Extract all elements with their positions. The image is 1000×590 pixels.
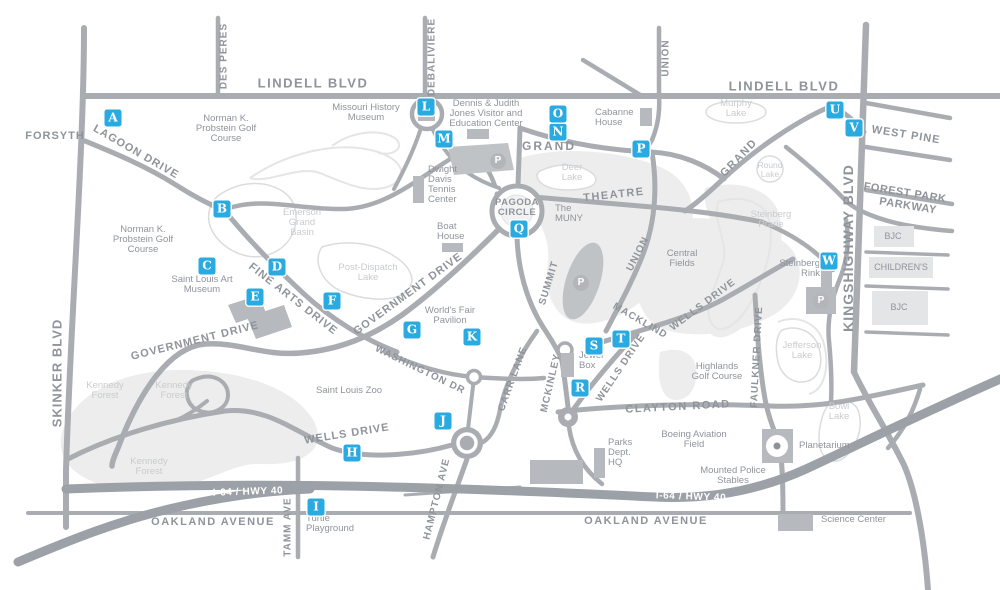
map-marker-e[interactable]: E <box>247 289 264 306</box>
map-marker-p[interactable]: P <box>633 141 650 158</box>
map-marker-i[interactable]: I <box>308 499 325 516</box>
map-marker-m[interactable]: M <box>436 131 453 148</box>
map-marker-w[interactable]: W <box>821 253 838 270</box>
map-marker-h[interactable]: H <box>344 445 361 462</box>
map-marker-o[interactable]: O <box>550 106 567 123</box>
map-marker-q[interactable]: Q <box>511 221 528 238</box>
parking-icon: P <box>490 153 506 169</box>
map-marker-f[interactable]: F <box>324 293 341 310</box>
map-marker-a[interactable]: A <box>105 110 122 127</box>
forest-park-map: LINDELL BLVDLINDELL BLVDFORSYTHDES PERES… <box>0 0 1000 590</box>
map-marker-b[interactable]: B <box>214 201 231 218</box>
map-marker-t[interactable]: T <box>613 331 630 348</box>
map-marker-n[interactable]: N <box>550 124 567 141</box>
map-marker-c[interactable]: C <box>199 258 216 275</box>
map-marker-j[interactable]: J <box>435 413 452 430</box>
parking-icon: P <box>573 275 589 291</box>
map-marker-d[interactable]: D <box>269 259 286 276</box>
map-marker-v[interactable]: V <box>846 120 863 137</box>
parking-icon: P <box>813 293 829 309</box>
map-marker-r[interactable]: R <box>572 380 589 397</box>
marker-layer: ABCDEFGHIJKLMNOPQRSTUVWPPP <box>0 0 1000 590</box>
map-marker-k[interactable]: K <box>464 329 481 346</box>
map-marker-l[interactable]: L <box>418 99 435 116</box>
map-marker-s[interactable]: S <box>586 338 603 355</box>
map-marker-g[interactable]: G <box>404 322 421 339</box>
map-marker-u[interactable]: U <box>827 102 844 119</box>
